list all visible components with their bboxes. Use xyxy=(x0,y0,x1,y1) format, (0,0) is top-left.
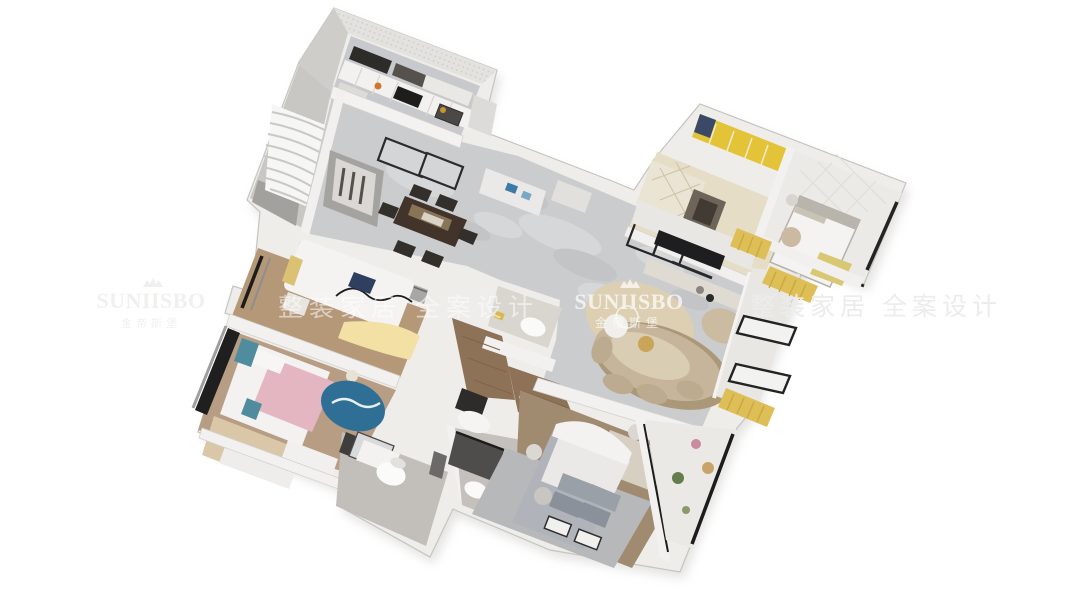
svg-text:整装家居 全案设计: 整装家居 全案设计 xyxy=(750,293,1002,321)
svg-text:金帝斯堡: 金帝斯堡 xyxy=(595,315,663,330)
svg-text:整装家居 全案设计: 整装家居 全案设计 xyxy=(278,294,539,322)
svg-text:SUNIISBO: SUNIISBO xyxy=(96,288,205,313)
svg-text:SUNIISBO: SUNIISBO xyxy=(574,289,683,314)
svg-text:金帝斯堡: 金帝斯堡 xyxy=(121,316,181,330)
